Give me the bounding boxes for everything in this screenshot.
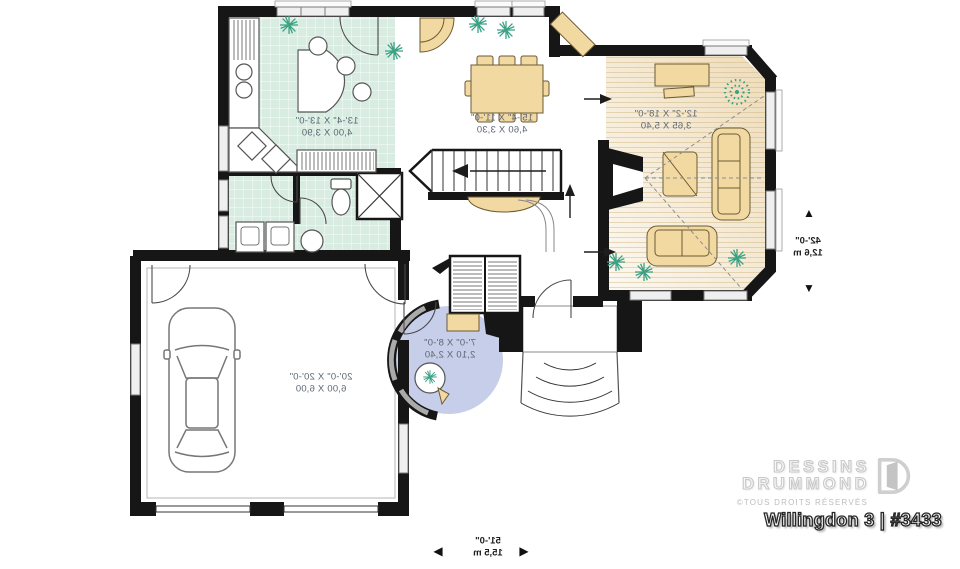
kitchen-dimension-label: 13'-4" X 13'-0" 4,00 X 3,90 (295, 116, 358, 139)
overall-width-metric: 15,5 m (473, 547, 503, 559)
staircase (410, 150, 564, 212)
width-arrow-left-icon: ◀ (433, 544, 442, 558)
garage-dim-imperial: 20'-0" X 20'-0" (289, 372, 352, 384)
living-dim-imperial: 12'-2" X 18'-0" (634, 109, 697, 121)
car (164, 308, 240, 472)
floor-plan-page: 13'-4" X 13'-0" 4,00 X 3,90 15'-4" X 11'… (0, 0, 960, 569)
brand-block: DESSINS DRUMMOND ©TOUS DROITS RÉSERVÉS W… (737, 456, 942, 531)
living-dim-metric: 3,65 X 5,40 (634, 120, 697, 132)
depth-arrow-up-icon: ▲ (803, 206, 815, 220)
brand-name-line1: DESSINS (742, 459, 870, 476)
foyer-dim-imperial: 7'-0" X 8'-0" (424, 338, 476, 350)
dining-dim-imperial: 15'-4" X 11'-0" (471, 113, 533, 125)
brand-name: DESSINS DRUMMOND (742, 459, 870, 493)
entry-porch (521, 306, 619, 416)
plan-title: Willingdon 3 | #3433 (737, 510, 942, 531)
garage-dim-metric: 6,00 X 6,00 (289, 383, 352, 395)
dining-dim-metric: 4,60 X 3,30 (471, 124, 533, 136)
foyer-dimension-label: 7'-0" X 8'-0" 2,10 X 2,40 (424, 338, 476, 361)
kitchen-dim-imperial: 13'-4" X 13'-0" (295, 116, 358, 128)
kitchen-dim-metric: 4,00 X 3,90 (295, 127, 358, 139)
dining-dimension-label: 15'-4" X 11'-0" 4,60 X 3,30 (471, 113, 533, 136)
width-arrow-right-icon: ▶ (519, 544, 528, 558)
drummond-door-logo-icon (876, 456, 912, 496)
foyer-dim-metric: 2,10 X 2,40 (424, 349, 476, 361)
garage-dimension-label: 20'-0" X 20'-0" 6,00 X 6,00 (289, 372, 352, 395)
overall-width-imperial: 51'-0" (473, 536, 503, 548)
overall-depth-imperial: 42'-0" (793, 236, 823, 248)
brand-name-line2: DRUMMOND (742, 476, 870, 493)
overall-depth-label: 42'-0" 12,6 m (793, 236, 823, 259)
brand-logo-row: DESSINS DRUMMOND (737, 456, 942, 496)
living-dimension-label: 12'-2" X 18'-0" 3,65 X 5,40 (634, 109, 697, 132)
overall-width-label: 51'-0" 15,5 m (473, 536, 503, 559)
depth-arrow-down-icon: ▼ (803, 281, 815, 295)
stair-rug (468, 197, 540, 212)
fireplace (600, 146, 643, 212)
brand-rights: ©TOUS DROITS RÉSERVÉS (737, 498, 942, 507)
overall-depth-metric: 12,6 m (793, 247, 823, 259)
